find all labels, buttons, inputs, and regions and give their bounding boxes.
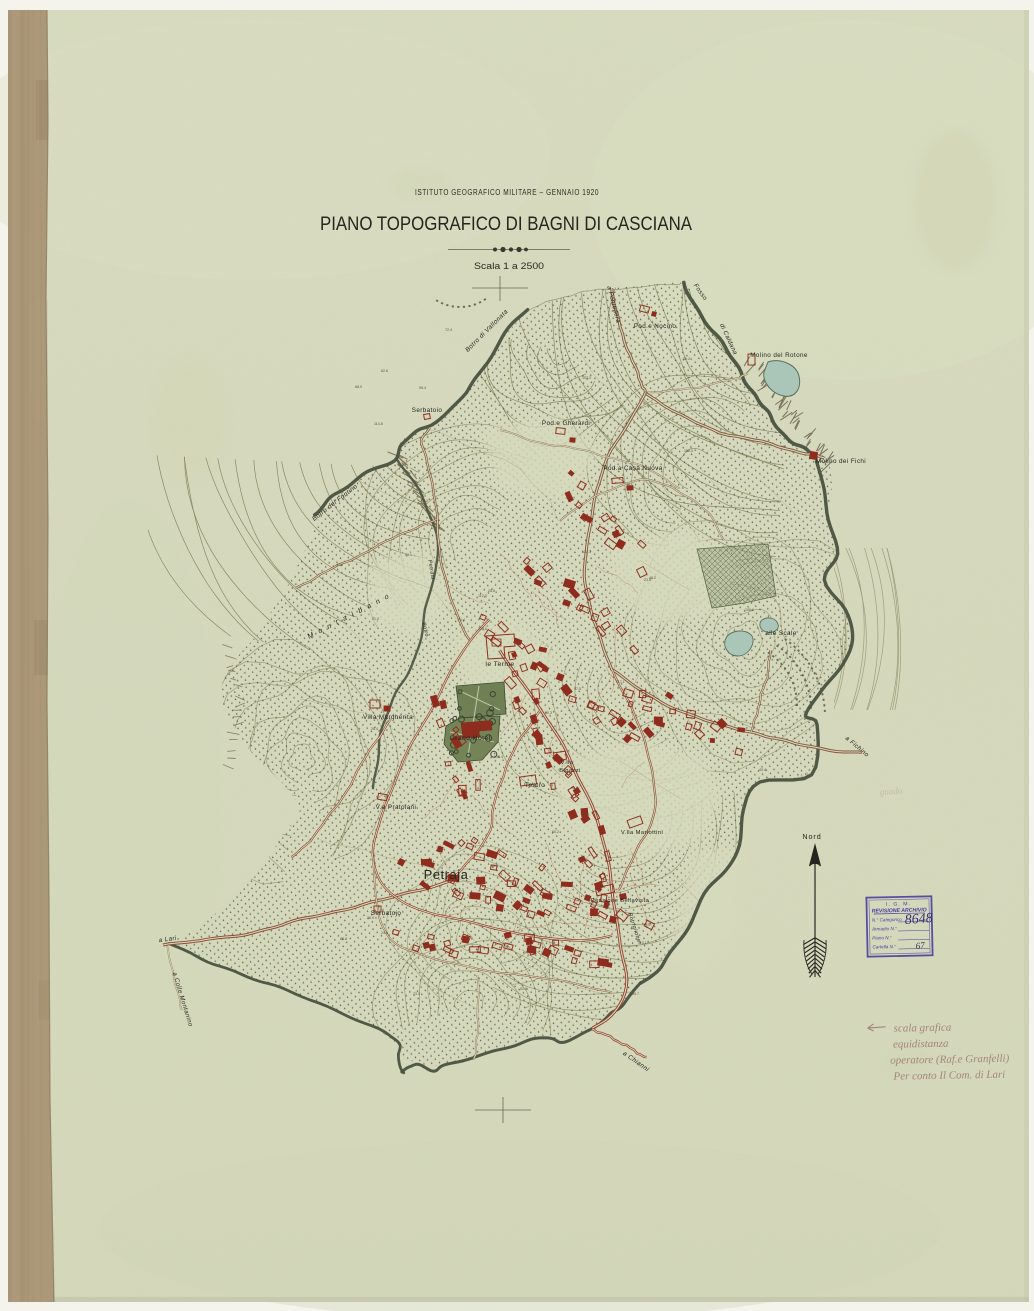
svg-text:26.9: 26.9 [367,916,374,920]
svg-text:Grand Hôtel: Grand Hôtel [449,735,490,742]
svg-text:N.° Categorico: N.° Categorico [872,917,902,923]
svg-text:47.5: 47.5 [336,563,343,567]
svg-text:60.3: 60.3 [545,711,552,715]
svg-text:103.3: 103.3 [582,376,591,380]
svg-text:guado: guado [879,785,903,797]
svg-text:78.1: 78.1 [626,483,633,487]
svg-text:117.1: 117.1 [616,680,625,684]
svg-text:Serbatoio: Serbatoio [412,407,443,414]
svg-text:67: 67 [915,940,925,951]
svg-text:24.6: 24.6 [381,931,388,935]
svg-text:62.6: 62.6 [381,369,388,373]
svg-text:51.5: 51.5 [520,987,527,991]
svg-text:Pod.e Gherardi: Pod.e Gherardi [542,420,590,427]
svg-text:28.8: 28.8 [488,589,495,593]
svg-text:129.1: 129.1 [580,812,589,816]
svg-text:Bigazzi: Bigazzi [559,768,581,774]
svg-text:Pensione Bellavista: Pensione Bellavista [591,898,650,904]
svg-text:Pod.a Casa Nuova: Pod.a Casa Nuova [603,465,662,472]
svg-text:62.2: 62.2 [421,499,428,503]
svg-text:V.lla Mariottini: V.lla Mariottini [621,830,663,836]
svg-text:scala grafica: scala grafica [894,1022,952,1035]
svg-text:68.9: 68.9 [355,385,362,389]
svg-text:Serbatojo: Serbatojo [371,910,402,917]
svg-text:106.1: 106.1 [745,608,754,612]
svg-text:8648: 8648 [904,911,933,928]
svg-text:60.2: 60.2 [552,830,559,834]
svg-text:73.3: 73.3 [413,992,420,996]
svg-text:Per conto Il Com. di Lari: Per conto Il Com. di Lari [892,1069,1005,1083]
svg-text:118.4: 118.4 [684,449,693,453]
svg-text:135.7: 135.7 [630,992,639,996]
svg-text:40.4: 40.4 [759,768,766,772]
svg-text:44.8: 44.8 [491,864,498,868]
svg-text:Nord: Nord [802,832,821,841]
svg-text:Cartella N.°: Cartella N.° [872,944,896,949]
svg-text:128.6: 128.6 [478,627,487,631]
svg-text:Teatro: Teatro [525,782,545,789]
svg-text:78.3: 78.3 [643,923,650,927]
svg-text:le Terme: le Terme [485,661,514,668]
svg-text:21.0: 21.0 [372,617,379,621]
svg-text:122.3: 122.3 [582,550,591,554]
svg-text:Petraja: Petraja [424,867,469,882]
svg-text:Piano N.°: Piano N.° [872,935,892,940]
svg-text:Molino dei Fichi: Molino dei Fichi [816,458,866,465]
svg-text:V.lla: V.lla [561,760,574,766]
svg-text:48.2: 48.2 [649,576,656,580]
svg-text:Armadio N.°: Armadio N.° [871,926,897,932]
svg-text:V.a Pratolani: V.a Pratolani [376,804,417,811]
svg-text:Villa Margherita: Villa Margherita [363,714,413,721]
svg-text:37.5: 37.5 [574,687,581,691]
svg-text:72.4: 72.4 [445,328,452,332]
svg-text:112.3: 112.3 [455,888,464,892]
svg-text:Scala 1 a 2500: Scala 1 a 2500 [474,261,544,271]
svg-text:I. G. M.: I. G. M. [886,901,911,908]
svg-text:operatore (Raf.e Granfelli): operatore (Raf.e Granfelli) [890,1053,1010,1067]
svg-text:136.4: 136.4 [494,755,503,759]
svg-text:88.8: 88.8 [340,937,347,941]
svg-text:112.3: 112.3 [478,594,487,598]
svg-text:95.4: 95.4 [419,386,426,390]
svg-text:PIANO TOPOGRAFICO DI BAGNI: PIANO TOPOGRAFICO DI BAGNI DI CASCIANA [320,214,692,235]
svg-text:equidistanza: equidistanza [893,1038,949,1051]
svg-text:Pod.e Nocino: Pod.e Nocino [634,323,677,330]
svg-text:114.8: 114.8 [374,422,383,426]
svg-text:alle Scale: alle Scale [765,630,796,637]
svg-text:96.6: 96.6 [571,786,578,790]
svg-text:36.2: 36.2 [683,357,690,361]
svg-text:113.1: 113.1 [638,941,647,945]
svg-text:Molino del Rotone: Molino del Rotone [750,352,808,359]
svg-text:ISTITUTO GEOGRAFICO MILITARE: ISTITUTO GEOGRAFICO MILITARE – GENNAIO 1… [415,188,599,197]
svg-text:28.4: 28.4 [371,727,378,731]
svg-text:70.4: 70.4 [458,618,465,622]
svg-text:60.1: 60.1 [405,553,412,557]
